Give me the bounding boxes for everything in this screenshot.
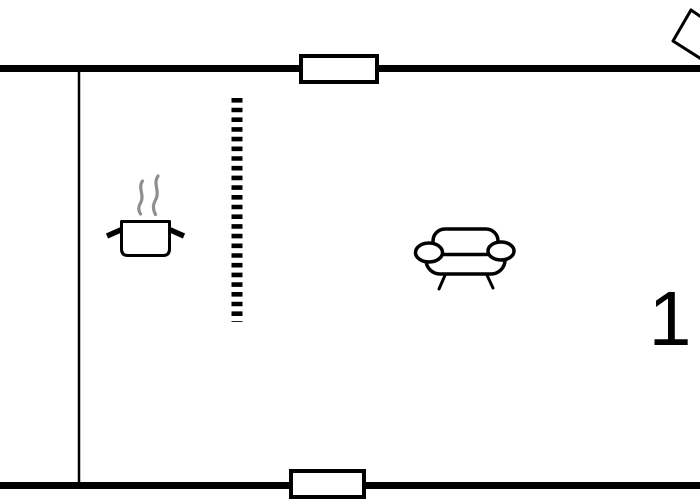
- cooking-pot-icon: [107, 176, 184, 256]
- steam-icon: [139, 176, 158, 215]
- top-window: [301, 56, 377, 82]
- sofa-icon: [416, 229, 515, 289]
- corner-flag-icon: [673, 10, 700, 62]
- bottom-window: [291, 471, 364, 497]
- room-number-label: 1: [649, 276, 692, 362]
- floor-plan-drawing: 1: [0, 0, 700, 500]
- floor-plan: 1: [0, 0, 700, 500]
